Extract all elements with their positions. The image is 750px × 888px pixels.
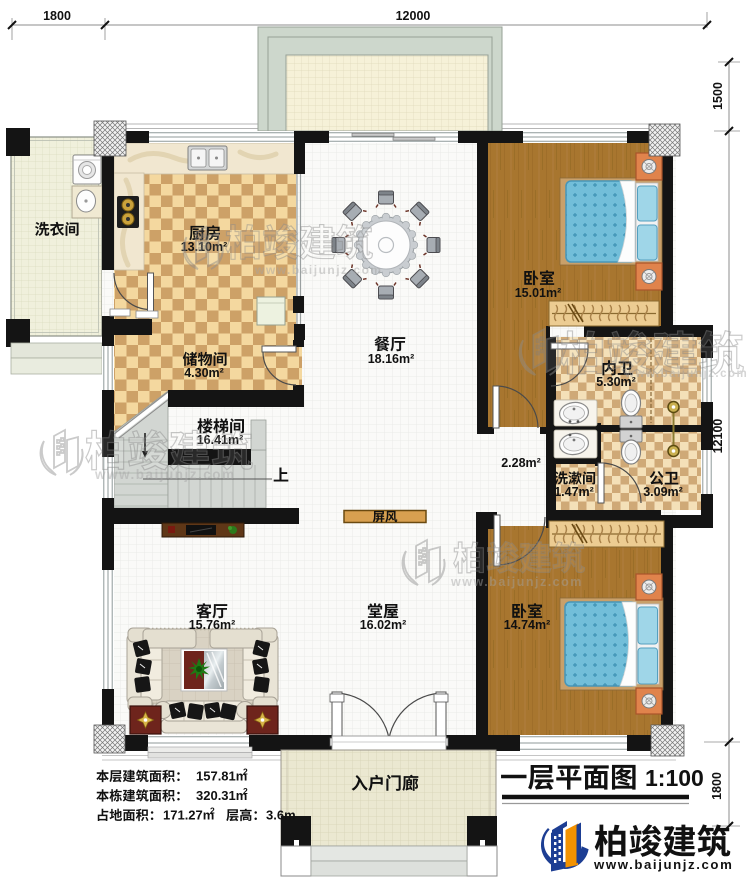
- svg-text:www.baijunjz.com: www.baijunjz.com: [593, 857, 733, 872]
- svg-text:www.baijunjz.com: www.baijunjz.com: [624, 368, 748, 380]
- svg-text:3.6m: 3.6m: [266, 808, 296, 823]
- svg-text:14.74m²: 14.74m²: [504, 618, 551, 632]
- svg-text:16.02m²: 16.02m²: [360, 618, 407, 632]
- svg-text:15.76m²: 15.76m²: [189, 618, 236, 632]
- svg-text:18.16m²: 18.16m²: [368, 352, 415, 366]
- svg-text:2: 2: [210, 806, 215, 816]
- svg-text:157.81m: 157.81m: [196, 769, 247, 784]
- svg-text:4.30m²: 4.30m²: [184, 366, 224, 380]
- svg-text:1:100: 1:100: [645, 765, 704, 791]
- svg-text:3.09m²: 3.09m²: [643, 485, 683, 499]
- svg-text:1.47m²: 1.47m²: [554, 485, 594, 499]
- svg-text:1800: 1800: [43, 9, 71, 23]
- svg-text:12000: 12000: [396, 9, 431, 23]
- svg-text:15.01m²: 15.01m²: [515, 286, 562, 300]
- svg-text:www.baijunjz.com: www.baijunjz.com: [450, 575, 583, 589]
- svg-text:www.baijunjz.com: www.baijunjz.com: [94, 467, 236, 482]
- svg-text:171.27m: 171.27m: [163, 808, 214, 823]
- svg-text:2: 2: [243, 767, 248, 777]
- svg-text:320.31m: 320.31m: [196, 788, 247, 803]
- svg-text:12100: 12100: [711, 419, 725, 454]
- svg-text:2: 2: [243, 786, 248, 796]
- svg-text:www.baijunjz.com: www.baijunjz.com: [254, 263, 383, 277]
- svg-text:1500: 1500: [711, 82, 725, 110]
- svg-text:1800: 1800: [710, 772, 724, 800]
- svg-text:2.28m²: 2.28m²: [501, 456, 541, 470]
